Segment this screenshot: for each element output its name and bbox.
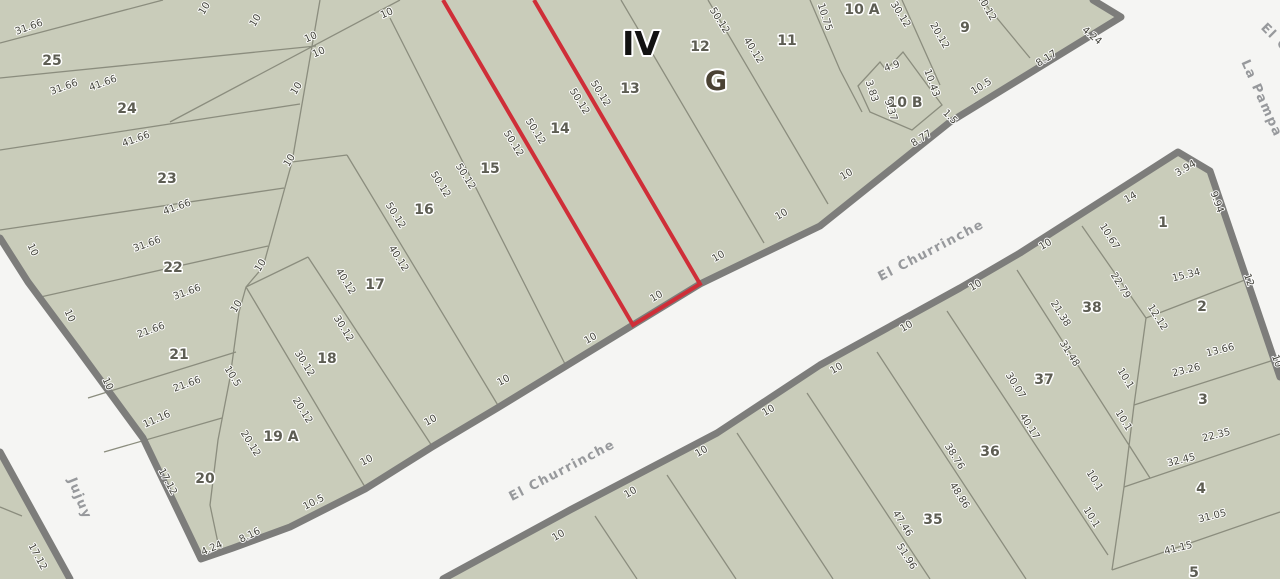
parcel-number: 18 — [317, 351, 336, 367]
parcel-number: 1 — [1158, 215, 1168, 231]
parcel-number: 16 — [414, 202, 433, 218]
map-canvas: 25242322212019 A181716151413121110 A10 B… — [0, 0, 1280, 579]
parcel-number: 2 — [1197, 299, 1207, 315]
parcel-number: 36 — [980, 444, 999, 460]
parcel-number: 5 — [1189, 565, 1199, 579]
parcel-number: 9 — [960, 20, 970, 36]
parcel-number: 35 — [923, 512, 942, 528]
parcel-number: 21 — [169, 347, 188, 363]
parcel-number: 3 — [1198, 392, 1208, 408]
parcel-number: 23 — [157, 171, 176, 187]
parcel-number: 17 — [365, 277, 384, 293]
cadastral-map: 25242322212019 A181716151413121110 A10 B… — [0, 0, 1280, 579]
parcel-number: 15 — [480, 161, 499, 177]
parcel-number: 38 — [1082, 300, 1101, 316]
parcel-number: 11 — [777, 33, 796, 49]
parcel-number: 25 — [42, 53, 61, 69]
block-label: IV — [622, 24, 660, 63]
parcel-number: 4 — [1196, 481, 1206, 497]
parcel-number: 24 — [117, 101, 137, 117]
parcel-number: 12 — [690, 39, 709, 55]
parcel-number: 22 — [163, 260, 182, 276]
parcel-number: 13 — [620, 81, 639, 97]
block-label: G — [705, 66, 727, 97]
parcel-number: 37 — [1034, 372, 1053, 388]
parcel-number: 19 A — [263, 429, 298, 445]
parcel-number: 20 — [195, 471, 215, 487]
parcel-number: 10 A — [844, 2, 879, 18]
parcel-number: 14 — [550, 121, 570, 137]
